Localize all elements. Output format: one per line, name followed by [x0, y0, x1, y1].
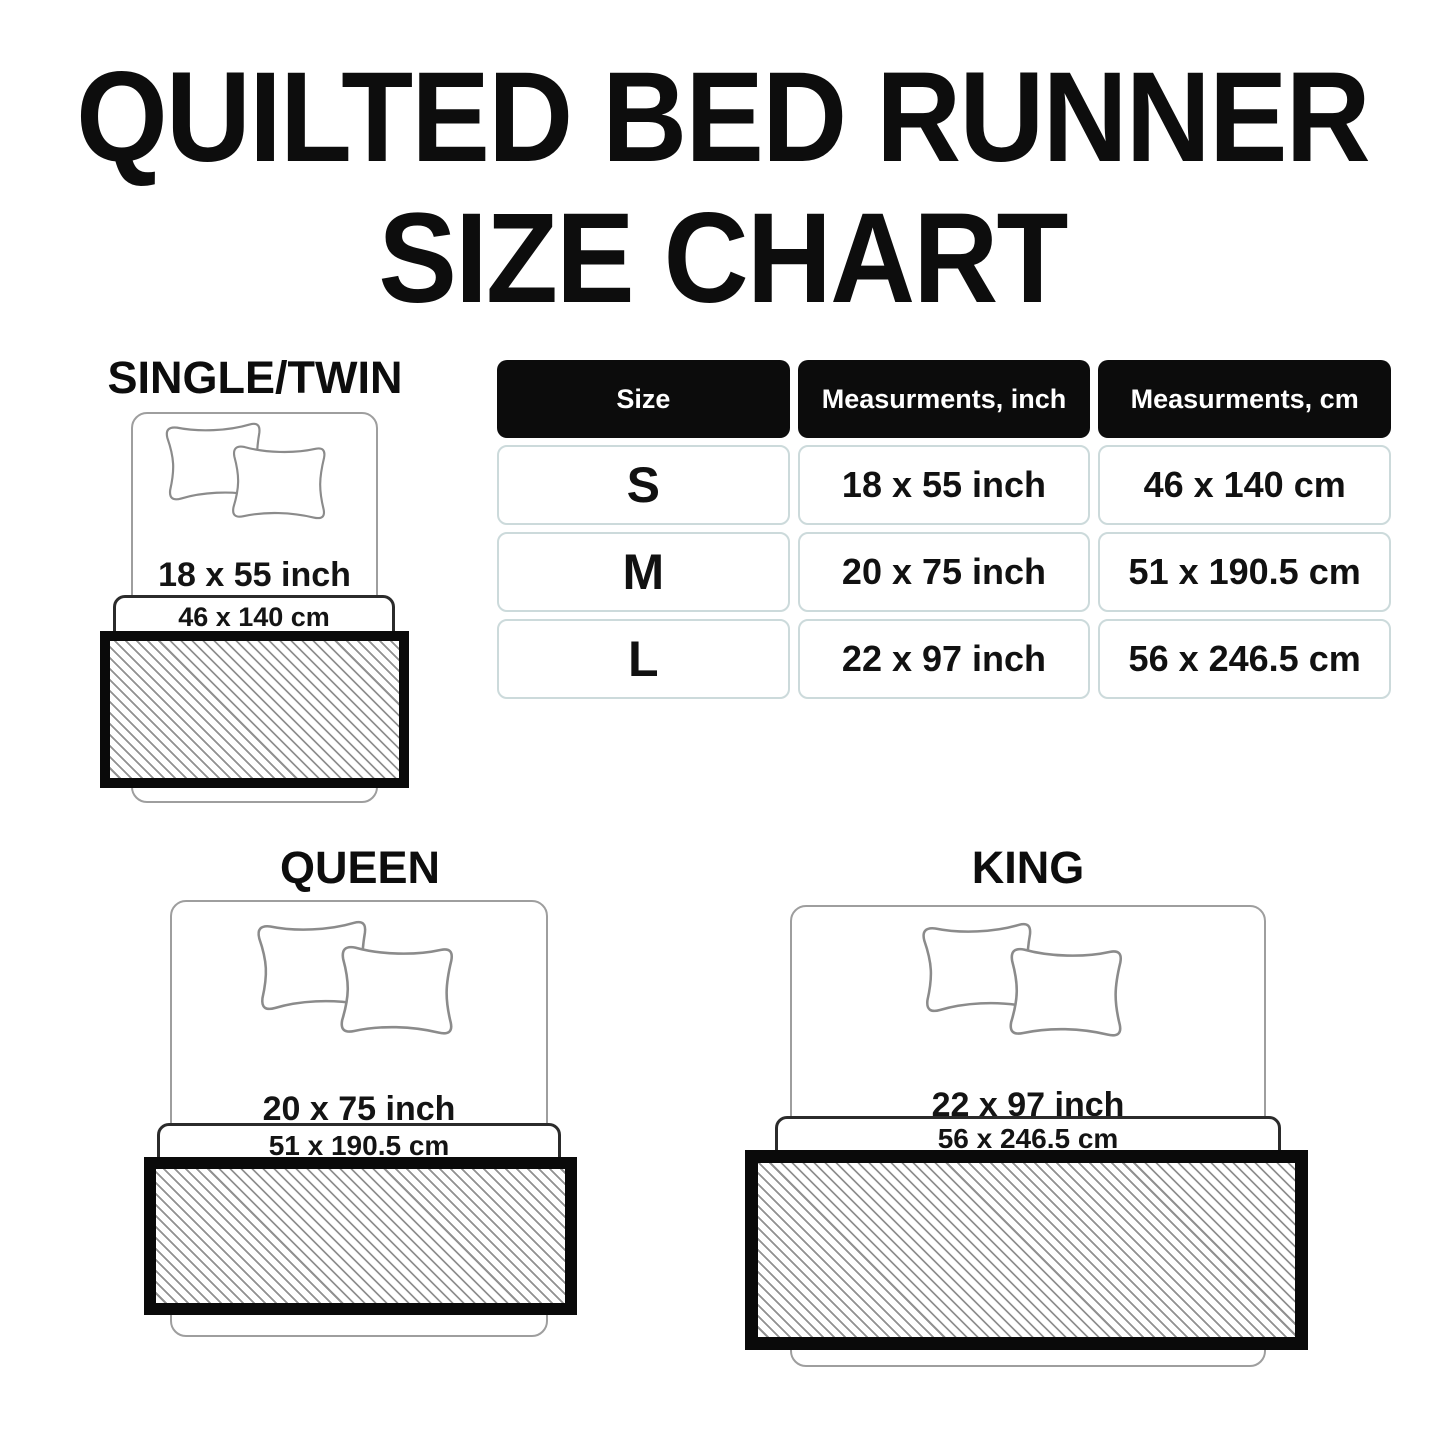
page-title: QUILTED BED RUNNER SIZE CHART: [0, 48, 1445, 330]
queen-bed-runner-swatch: [144, 1157, 577, 1315]
king-pillows-icon: [902, 916, 1152, 1046]
size-table: Size Measurments, inch Measurments, cm S…: [497, 360, 1391, 699]
king-label: KING: [868, 842, 1188, 894]
single-pillows-icon: [157, 416, 353, 528]
table-cell-cm-s: 46 x 140 cm: [1098, 445, 1391, 525]
single-cm-measurement: 46 x 140 cm: [178, 602, 330, 632]
page-title-line-1: QUILTED BED RUNNER: [58, 48, 1387, 189]
table-cell-inch-l: 22 x 97 inch: [798, 619, 1091, 699]
table-cell-cm-l: 56 x 246.5 cm: [1098, 619, 1391, 699]
queen-label: QUEEN: [200, 842, 520, 894]
king-bed-runner-swatch: [745, 1150, 1308, 1350]
page-title-line-2: SIZE CHART: [58, 189, 1387, 330]
single-inch-measurement: 18 x 55 inch: [131, 556, 378, 595]
table-header-inch: Measurments, inch: [798, 360, 1091, 438]
table-cell-size-l: L: [497, 619, 790, 699]
table-cell-inch-s: 18 x 55 inch: [798, 445, 1091, 525]
diagram-single-label: SINGLE/TWIN: [90, 352, 420, 404]
table-cell-inch-m: 20 x 75 inch: [798, 532, 1091, 612]
table-cell-size-s: S: [497, 445, 790, 525]
size-chart-infographic: QUILTED BED RUNNER SIZE CHART Size Measu…: [0, 0, 1445, 1445]
queen-pillows-icon: [242, 912, 477, 1042]
table-header-cm: Measurments, cm: [1098, 360, 1391, 438]
table-cell-size-m: M: [497, 532, 790, 612]
table-cell-cm-m: 51 x 190.5 cm: [1098, 532, 1391, 612]
table-header-size: Size: [497, 360, 790, 438]
single-bed-runner-swatch: [100, 631, 409, 788]
